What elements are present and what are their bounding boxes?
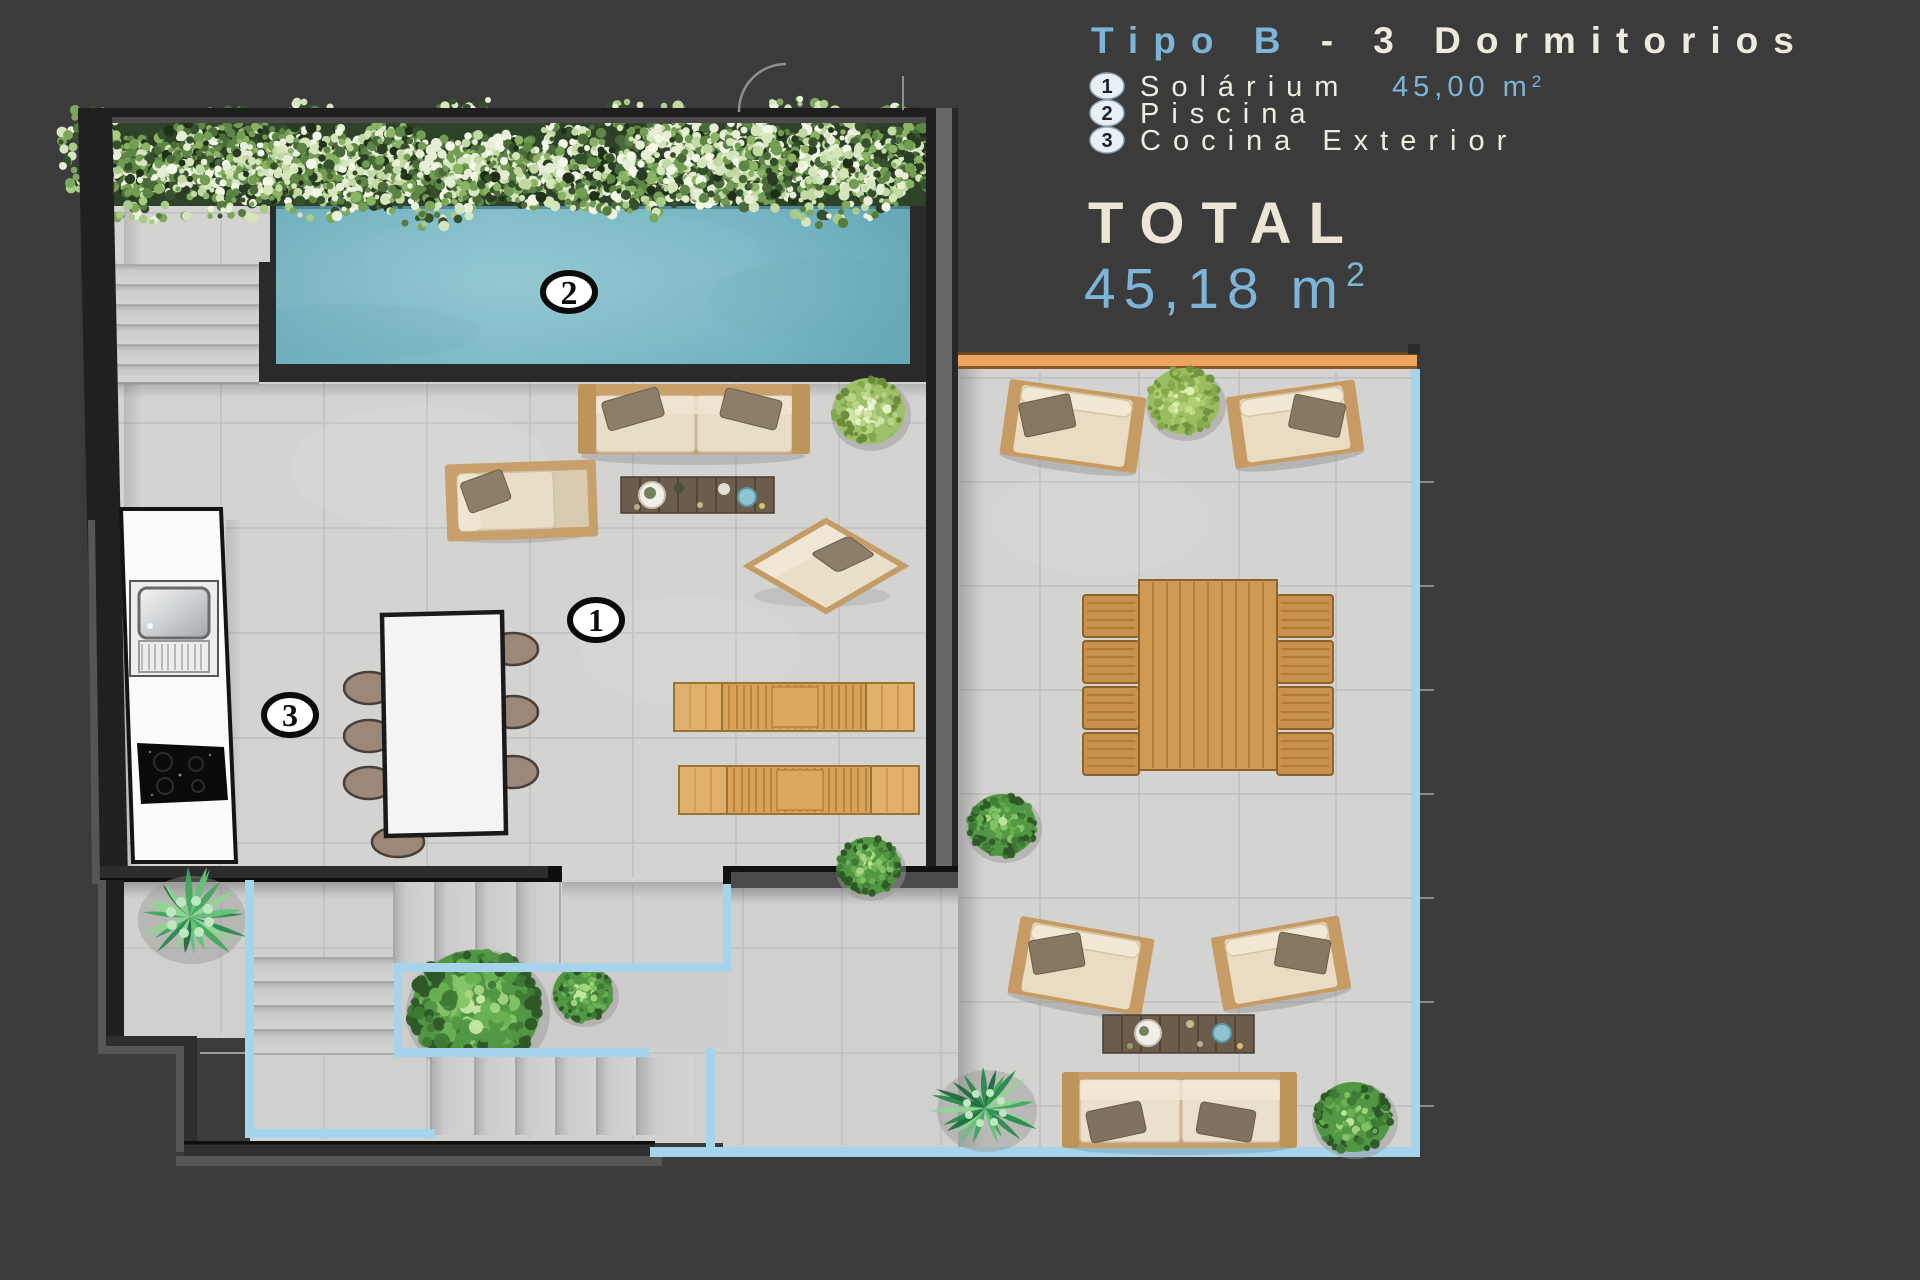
svg-text:3: 3: [282, 697, 298, 733]
svg-text:1: 1: [588, 602, 604, 638]
svg-text:2: 2: [561, 275, 578, 312]
